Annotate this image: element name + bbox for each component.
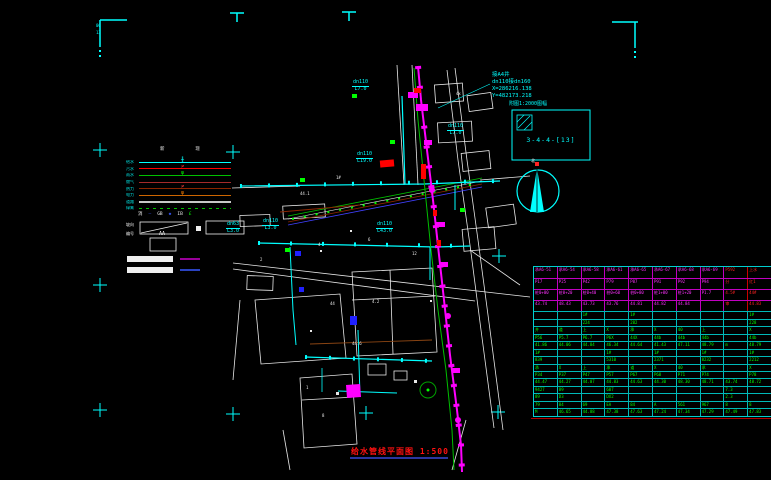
building-outlines <box>232 65 530 470</box>
table-cell <box>677 312 701 319</box>
legend-symbol: ◆ <box>169 212 172 217</box>
legend-symbol: GB <box>157 212 162 217</box>
table-cell: 44.81 <box>629 301 653 311</box>
table-cell <box>701 387 725 393</box>
table-cell <box>677 357 701 364</box>
table-cell: X <box>653 365 677 371</box>
table-cell: 47.83 <box>748 409 771 416</box>
table-cell: P17 <box>534 279 558 289</box>
table-cell: 5310 <box>605 357 629 364</box>
table-cell: 桩0+40 <box>582 290 606 300</box>
table-cell <box>724 350 748 356</box>
table-cell <box>724 327 748 334</box>
table-cell: 承A6-51 <box>534 267 558 278</box>
table-cell: 89 <box>558 387 582 393</box>
table-cell: P68 <box>653 372 677 378</box>
table-cell: 桩0+20 <box>558 290 582 300</box>
table-cell: 41.86 <box>534 342 558 349</box>
table-cell <box>701 312 725 319</box>
table-cell: 上水 <box>748 267 771 278</box>
table-row: P56P5.7P6.7P6X44X44b44b44b44b <box>534 334 771 341</box>
table-cell: P1.7 <box>701 290 725 300</box>
legend-row: 雨水φ <box>126 172 242 179</box>
table-cell: 承A6-65 <box>629 267 653 278</box>
table-cell: 1# <box>748 312 771 319</box>
table-cell <box>653 320 677 326</box>
legend-headers: 新 现 <box>160 146 214 152</box>
table-cell: 2371 <box>653 357 677 364</box>
table-cell <box>677 387 701 393</box>
pipe-size-label: dn110L7.0 <box>352 80 369 92</box>
table-cell: 桩1+20 <box>677 290 701 300</box>
table-cell: 1# <box>653 350 677 356</box>
legend-id-label: 编号 <box>126 231 134 237</box>
legend-row-label: 道路 <box>126 200 139 204</box>
table-row: 9427896077.3 <box>534 386 771 393</box>
table-cell <box>558 312 582 319</box>
legend-row: 道路 <box>126 199 242 206</box>
table-cell: 44.84 <box>582 342 606 349</box>
pipe-length: L3.0 <box>262 226 279 232</box>
table-cell: 561 <box>677 402 701 408</box>
map-tiny-text: 1# <box>336 176 341 180</box>
table-cell: P79 <box>605 279 629 289</box>
map-tiny-text: 4 <box>318 243 320 247</box>
table-cell <box>653 394 677 401</box>
table-cell: 承A6-58 <box>582 267 606 278</box>
table-cell: 41.43 <box>653 342 677 349</box>
table-cell: 4.5# <box>724 290 748 300</box>
legend-row: 绿篱 <box>126 205 242 212</box>
pipe-size-label: dn110L7.0 <box>447 124 464 136</box>
pipe-size-label: dn110L43.0 <box>376 222 393 234</box>
detail-box <box>512 110 590 160</box>
map-tiny-text: 13 <box>96 31 101 35</box>
table-cell: 桩0+00 <box>534 290 558 300</box>
table-cell: X <box>748 327 771 334</box>
legend-line-sample: φ <box>139 175 231 176</box>
coord-line: 接A4井 <box>492 72 532 79</box>
coord-line: Y=482173.218 <box>492 93 532 100</box>
table-cell <box>605 312 629 319</box>
table-cell: 1# <box>605 350 629 356</box>
table-cell: 967 <box>701 402 725 408</box>
pipe-length: L7.0 <box>352 87 369 93</box>
table-cell: 46.34 <box>605 342 629 349</box>
pipe-length: L43.0 <box>376 229 393 235</box>
table-cell <box>558 320 582 326</box>
pipe-size-label: dn110L3.0 <box>262 219 279 231</box>
table-cell: 48.71 <box>701 379 725 386</box>
table-cell: 分 <box>724 279 748 289</box>
table-cell: 9427 <box>534 387 558 393</box>
legend-line-sample: ≠ <box>139 188 231 189</box>
table-cell: A <box>653 402 677 408</box>
table-row: 桩0+00桩0+20桩0+40桩0+60桩0+80桩1+00桩1+20P1.74… <box>534 289 771 300</box>
map-tiny-text: 44.1 <box>300 192 310 196</box>
table-cell: P47 <box>582 372 606 378</box>
table-cell: 8232 <box>701 357 725 364</box>
table-cell: 红1 <box>748 279 771 289</box>
table-cell: 44.27 <box>558 379 582 386</box>
table-cell: 43.76 <box>605 301 629 311</box>
table-cell: 8 <box>724 402 748 408</box>
table-cell: 43.74 <box>534 301 558 311</box>
table-cell: M <box>534 409 558 416</box>
table-cell <box>748 394 771 401</box>
table-cell <box>582 357 606 364</box>
map-tiny-text: 06 <box>96 24 101 28</box>
table-cell: 承 <box>534 365 558 371</box>
table-cell <box>558 357 582 364</box>
legend-line-sample <box>139 201 231 204</box>
table-cell <box>677 320 701 326</box>
legend-row-label: 热力 <box>126 187 139 191</box>
table-cell: 43.74 <box>724 379 748 386</box>
table-bottom-rule <box>531 418 771 419</box>
table-cell: 44.63 <box>629 379 653 386</box>
table-cell: 282 <box>629 320 653 326</box>
table-cell: 44.83 <box>605 379 629 386</box>
legend-slope-label: 坡向 <box>126 222 134 228</box>
table-cell <box>724 372 748 378</box>
pipe-elevation-table: 承A6-51承A6-54承A6-58承A6-61承A6-65承A6-67承A6-… <box>533 266 771 417</box>
legend-line-marker: ╫ <box>181 158 184 163</box>
table-cell: 48.43 <box>558 301 582 311</box>
map-tiny-text: 44 <box>330 302 335 306</box>
table-cell <box>582 350 606 356</box>
table-cell: 47.49 <box>724 409 748 416</box>
table-cell <box>558 350 582 356</box>
table-cell: 2212 <box>748 357 771 364</box>
table-cell: 44.64 <box>629 342 653 349</box>
table-cell: P25 <box>558 279 582 289</box>
legend-line-sample: ╫ <box>139 162 231 163</box>
table-cell: 44.84 <box>677 301 701 311</box>
table-row: P17P25P42P79P87P91P92P94分红1 <box>534 278 771 289</box>
table-cell <box>677 394 701 401</box>
table-cell <box>605 320 629 326</box>
legend-row: 电力φ <box>126 192 242 199</box>
map-tiny-text: 2 <box>260 258 262 262</box>
detail-box-caption: 附图1:2000图幅 <box>509 100 547 107</box>
legend-line-marker: φ <box>181 191 184 196</box>
coord-leader-line <box>438 84 490 108</box>
table-cell <box>701 301 725 311</box>
legend-row-label: 绿篱 <box>126 206 139 210</box>
legend-symbol: IB <box>177 212 182 217</box>
table-row: 41.8644.0644.8446.3444.6441.4347.1148.79… <box>534 341 771 349</box>
north-arrow-label: 北 <box>531 158 535 164</box>
table-cell: 44b <box>653 335 677 341</box>
table-cell: 1# <box>582 312 606 319</box>
table-cell: 承A6-68 <box>677 267 701 278</box>
table-cell: 道 <box>558 327 582 334</box>
table-cell: 承 <box>701 365 725 371</box>
legend-line-marker: φ <box>181 171 184 176</box>
table-cell <box>677 350 701 356</box>
pipe-length: L7.0 <box>447 131 464 137</box>
legend-symbol: — <box>149 212 152 217</box>
table-cell: 47.34 <box>677 409 701 416</box>
legend-line-marker: ≠ <box>181 185 184 190</box>
table-cell: EA <box>605 402 629 408</box>
table-row: 798469EA84A56196788 <box>534 401 771 408</box>
table-cell: P71 <box>677 372 701 378</box>
table-cell: 47.38 <box>605 409 629 416</box>
table-cell: 2.3 <box>724 394 748 401</box>
table-cell: 道 <box>629 365 653 371</box>
table-cell: 228 <box>748 320 771 326</box>
table-cell: 44.06 <box>558 342 582 349</box>
table-cell: 607 <box>605 387 629 393</box>
table-cell: 44# <box>748 290 771 300</box>
table-cell: 上 <box>582 365 606 371</box>
table-cell: 44.82 <box>653 301 677 311</box>
table-cell: 1# <box>748 350 771 356</box>
table-cell: 46.65 <box>558 409 582 416</box>
table-cell: 69 <box>582 402 606 408</box>
table-cell: 44.83 <box>748 301 771 311</box>
table-cell: 47.29 <box>701 409 725 416</box>
table-row: 89D3DX22.3 <box>534 393 771 401</box>
legend-id-box-text: AA <box>150 231 174 237</box>
table-cell: X <box>605 327 629 334</box>
table-cell <box>629 394 653 401</box>
drawing-title: 给水管线平面图 1:500 <box>320 446 480 457</box>
table-cell: 224 <box>582 320 606 326</box>
coordinate-annotation: 接A4井 dn110接dn160 X=286216.138 Y=482173.2… <box>492 72 532 100</box>
table-cell <box>629 350 653 356</box>
table-row: 224282228 <box>534 319 771 326</box>
table-cell: 1# <box>701 350 725 356</box>
table-cell: 44b <box>677 335 701 341</box>
table-cell: P37 <box>558 372 582 378</box>
legend-row-label: 燃气 <box>126 180 139 184</box>
table-row: 1#1#1# <box>534 311 771 319</box>
legend-line-sample <box>139 208 231 209</box>
table-cell: 桩1+00 <box>653 290 677 300</box>
table-row: 8395310237182322212 <box>534 356 771 364</box>
table-cell <box>701 394 725 401</box>
table-cell: 桩0+60 <box>605 290 629 300</box>
table-row: 井道上X承X40上X <box>534 326 771 334</box>
map-tiny-text: 4.2 <box>372 300 379 304</box>
water-pipes <box>240 96 500 396</box>
table-row: M46.6544.8847.3847.6347.2447.3447.2947.4… <box>534 408 771 416</box>
table-cell: 44.07 <box>582 379 606 386</box>
table-cell <box>748 387 771 393</box>
table-cell: P91 <box>653 279 677 289</box>
map-tiny-text: 44.6 <box>352 342 362 346</box>
table-row: 承A6-51承A6-54承A6-58承A6-61承A6-65承A6-67承A6-… <box>534 267 771 278</box>
table-cell <box>653 312 677 319</box>
table-cell: m <box>724 342 748 349</box>
table-cell: 43.73 <box>582 301 606 311</box>
cad-drawing-canvas: 接A4井 dn110接dn160 X=286216.138 Y=482173.2… <box>0 0 771 480</box>
table-cell: 7.3 <box>724 387 748 393</box>
map-tiny-text: 12 <box>412 252 417 256</box>
map-tiny-text: 4x <box>456 92 461 96</box>
legend-row-label: 给水 <box>126 160 139 164</box>
table-cell: X <box>748 365 771 371</box>
table-cell: P78 <box>748 372 771 378</box>
table-cell: 上 <box>582 327 606 334</box>
table-cell: 84 <box>558 402 582 408</box>
legend-symbol: £ <box>189 212 192 217</box>
table-cell: 承A6-61 <box>605 267 629 278</box>
table-cell: P592 <box>724 267 748 278</box>
table-cell: 40 <box>677 327 701 334</box>
table-cell <box>629 357 653 364</box>
pipe-size-label: dn63L3.0 <box>226 222 240 234</box>
pipe-size-label: dn110L19.0 <box>356 152 373 164</box>
table-cell <box>724 320 748 326</box>
table-cell: 承 <box>629 327 653 334</box>
table-cell: P42 <box>582 279 606 289</box>
table-cell: P5.7 <box>558 335 582 341</box>
table-cell: 承A6-69 <box>701 267 725 278</box>
table-cell: 44.30 <box>653 379 677 386</box>
corner-marks <box>100 12 638 48</box>
table-cell: 承A6-67 <box>653 267 677 278</box>
table-cell: 承 <box>605 365 629 371</box>
table-cell: 44.47 <box>534 379 558 386</box>
map-tiny-text: 8 <box>322 414 324 418</box>
table-row: 承X上承道X40承X <box>534 364 771 371</box>
table-cell <box>534 312 558 319</box>
table-cell: X <box>558 365 582 371</box>
detail-box-code: 3-4-4-[13] <box>513 136 589 144</box>
table-cell: 48.30 <box>677 379 701 386</box>
table-cell: P6.7 <box>582 335 606 341</box>
table-cell: X <box>653 327 677 334</box>
coord-line: X=286216.138 <box>492 86 532 93</box>
table-cell: 839 <box>534 357 558 364</box>
legend-line-sample <box>139 182 231 183</box>
table-cell: P87 <box>629 279 653 289</box>
legend-row-label: 雨水 <box>126 173 139 177</box>
table-row: 1#1#1#1#1# <box>534 349 771 356</box>
legend-symbols-row: 消—GB◆IB£ <box>138 212 192 217</box>
table-cell <box>582 387 606 393</box>
table-cell: 井 <box>534 327 558 334</box>
table-cell <box>701 320 725 326</box>
legend-line-sample: ≠ <box>139 168 231 169</box>
table-cell <box>724 357 748 364</box>
table-cell: 79 <box>534 402 558 408</box>
legend-row-label: 污水 <box>126 167 139 171</box>
legend-symbol: 消 <box>138 212 143 217</box>
table-cell: 1# <box>534 350 558 356</box>
table-cell: 89 <box>534 394 558 401</box>
table-row: 44.4744.2744.0744.8344.6344.3048.3048.71… <box>534 378 771 386</box>
table-cell: P74 <box>701 372 725 378</box>
map-tiny-text: 6 <box>368 238 370 242</box>
table-cell: 44.88 <box>582 409 606 416</box>
table-cell: 40 <box>677 365 701 371</box>
table-cell: 47.63 <box>629 409 653 416</box>
table-cell: 44X <box>629 335 653 341</box>
table-cell: 48.79 <box>748 342 771 349</box>
table-cell: 48.79 <box>701 342 725 349</box>
utility-band <box>280 178 482 344</box>
table-cell: 上 <box>701 327 725 334</box>
table-cell: 47.24 <box>653 409 677 416</box>
legend-line-sample: φ <box>139 195 231 196</box>
table-cell: 1# <box>629 312 653 319</box>
table-cell: P94 <box>701 279 725 289</box>
table-cell <box>582 394 606 401</box>
table-cell: 48.72 <box>748 379 771 386</box>
map-tiny-text: 1 <box>306 386 308 390</box>
legend-row-label: 电力 <box>126 193 139 197</box>
table-cell: P92 <box>677 279 701 289</box>
table-cell: 47.11 <box>677 342 701 349</box>
table-cell: 8 <box>748 402 771 408</box>
table-cell: D3 <box>558 394 582 401</box>
table-cell: 桩0+80 <box>629 290 653 300</box>
table-cell <box>724 365 748 371</box>
north-arrow <box>517 162 559 212</box>
legend-rows: 给水╫污水≠雨水φ燃气热力≠电力φ道路绿篱 <box>126 159 242 212</box>
table-cell: 84 <box>629 402 653 408</box>
table-cell <box>724 312 748 319</box>
table-cell <box>653 387 677 393</box>
table-row: 43.7448.4343.7343.7644.8144.8244.84审44.8… <box>534 300 771 311</box>
table-cell: 44b <box>701 335 725 341</box>
table-cell: P56 <box>534 335 558 341</box>
table-cell: P6X <box>605 335 629 341</box>
table-cell <box>534 320 558 326</box>
table-row: P34P37P47P57P67P68P71P74P78 <box>534 371 771 378</box>
table-cell: 审 <box>724 301 748 311</box>
table-cell <box>724 335 748 341</box>
table-cell: P34 <box>534 372 558 378</box>
table-cell: 44b <box>748 335 771 341</box>
table-cell: P57 <box>605 372 629 378</box>
corner-mark-dots <box>99 50 636 58</box>
table-cell <box>629 387 653 393</box>
coord-line: dn110接dn160 <box>492 79 532 86</box>
pipe-length: L19.0 <box>356 159 373 165</box>
table-cell: DX2 <box>605 394 629 401</box>
legend-line-marker: ≠ <box>181 165 184 170</box>
pipe-length: L3.0 <box>226 229 240 235</box>
table-cell: P67 <box>629 372 653 378</box>
table-cell: 承A6-54 <box>558 267 582 278</box>
